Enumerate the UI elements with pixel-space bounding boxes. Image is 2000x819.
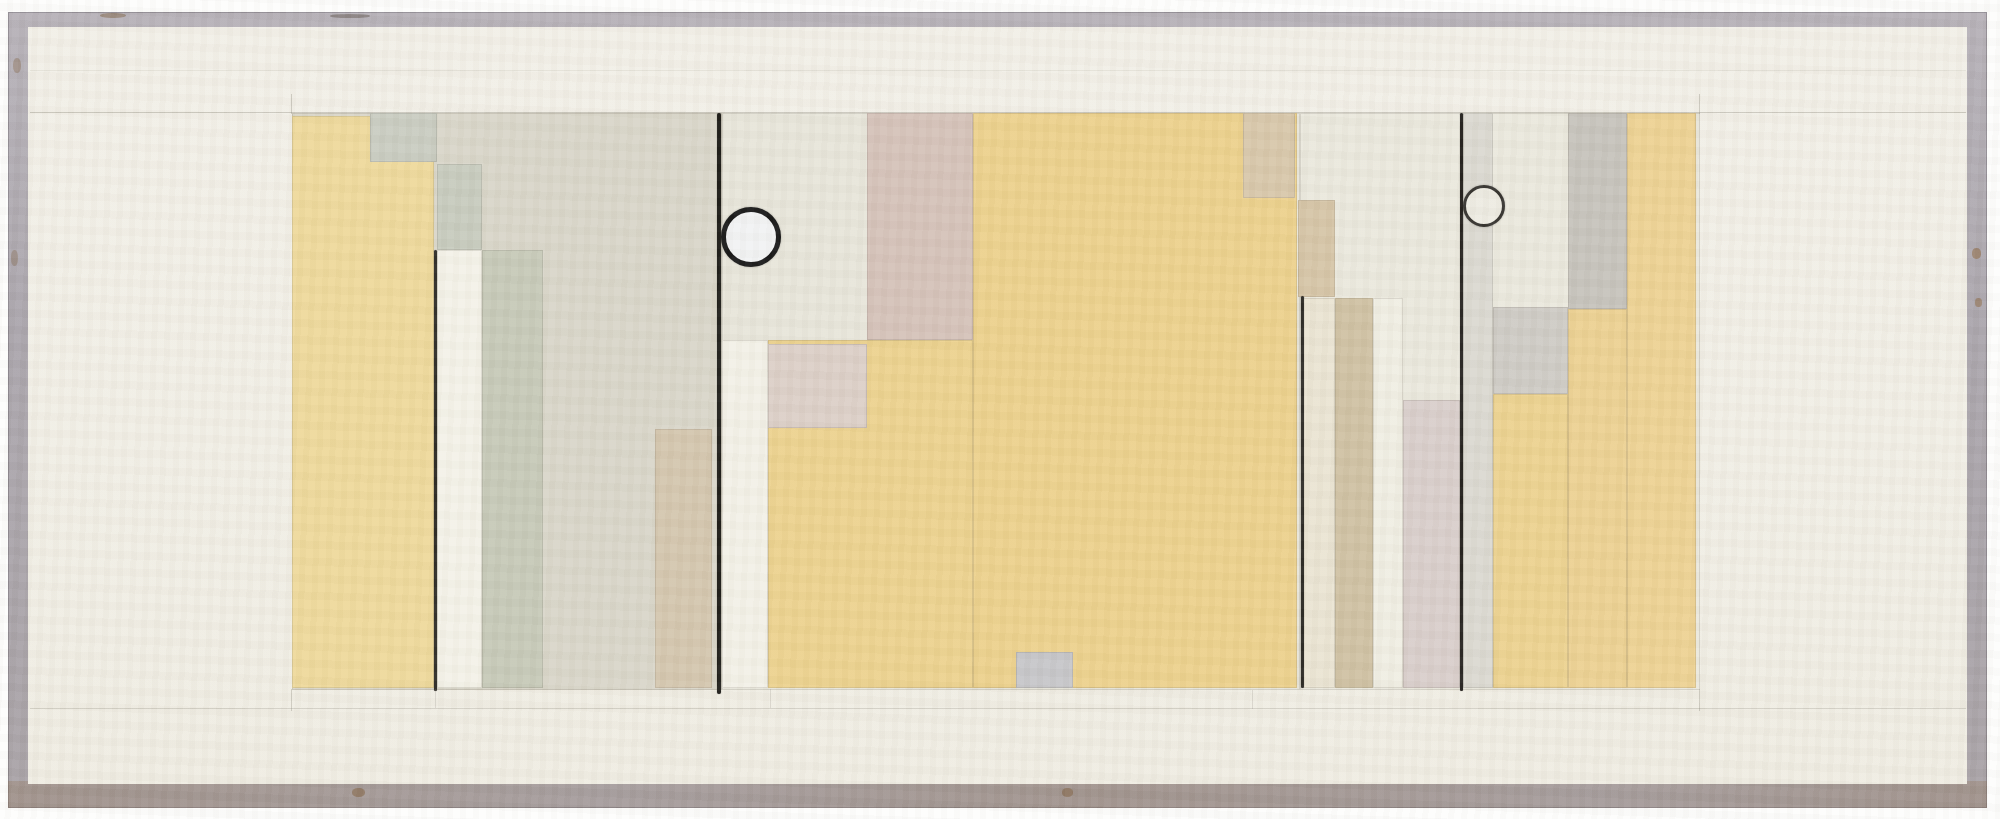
yellow-field-main (973, 113, 1297, 688)
frame-bottom-band (8, 781, 1987, 808)
yellow-block-left (292, 116, 434, 688)
artwork-photo (0, 0, 2000, 819)
frame-rust-left-2 (11, 250, 18, 266)
black-line-right-short (1301, 296, 1304, 688)
frame-mark-top-1 (100, 13, 126, 18)
tan-rect-mid (1298, 200, 1335, 297)
circle-left (721, 207, 781, 267)
frame-mark-top-2 (330, 14, 370, 18)
white-strip-right (1373, 298, 1403, 688)
pencil-tick-bottom-mid2 (770, 689, 771, 708)
pale-pink-rect (768, 344, 867, 428)
pencil-tick-top-left (291, 94, 292, 114)
olive-strip (482, 250, 543, 688)
pencil-bottom-rule (30, 708, 1966, 709)
frame-rust-bottom-2 (1062, 788, 1073, 797)
frame-rust-bottom-1 (352, 788, 365, 797)
tan-strip-right (1335, 298, 1373, 688)
black-line-main-left (717, 113, 721, 694)
yellow-block-right-lower (1493, 394, 1568, 688)
cream-strip-right (1303, 298, 1335, 688)
pencil-tick-bottom-mid3 (1252, 690, 1253, 709)
frame-rust-right-2 (1975, 298, 1982, 307)
yellow-strip-right-mid (1568, 309, 1627, 688)
white-strip-middle (722, 340, 768, 688)
gray-square-right (1493, 307, 1568, 394)
pinkgray-strip-right (1403, 400, 1460, 688)
gray-strip-upper (437, 164, 482, 250)
white-strip-left (437, 250, 482, 688)
pencil-upper-faint-rule (30, 70, 1966, 71)
pencil-tick-top-right (1699, 94, 1700, 114)
pencil-tick-bottom-left (291, 689, 292, 711)
black-line-main-right (1460, 113, 1463, 691)
small-gray-square (1016, 652, 1073, 688)
yellow-block-right (1627, 113, 1696, 688)
black-line-left-short (434, 250, 437, 691)
pencil-tick-bottom-right (1699, 689, 1700, 711)
deep-pink-rect (867, 113, 973, 340)
tan-strip-left (655, 429, 712, 688)
darkgray-strip-right (1568, 113, 1627, 309)
tan-rect-top (1243, 113, 1295, 198)
frame-rust-right-1 (1972, 248, 1981, 259)
pencil-tick-bottom-mid1 (435, 689, 436, 708)
frame-rust-left-1 (13, 58, 21, 73)
gray-notch-square (370, 113, 437, 162)
circle-right (1463, 185, 1505, 227)
pencil-top-rule (30, 112, 1966, 113)
